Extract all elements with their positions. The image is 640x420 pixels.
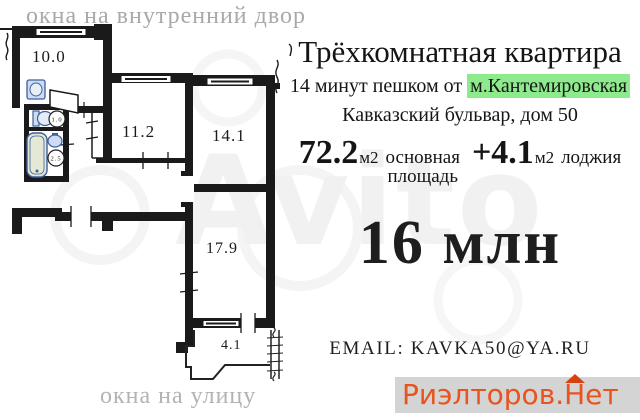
room-label-room2: 14.1 <box>212 126 246 145</box>
room-label-loggia: 4.1 <box>221 338 242 353</box>
bathtub-icon <box>27 133 47 177</box>
realtor-text-before: Риэлторов. <box>402 381 564 409</box>
main-area-unit: м2 <box>359 148 378 168</box>
extra-area-unit: м2 <box>535 148 554 168</box>
room-label-kitchen: 10.0 <box>32 47 66 66</box>
price: 16 млн <box>280 212 640 274</box>
house-roof-icon <box>565 374 585 383</box>
room-label-room1: 11.2 <box>122 122 155 141</box>
listing-title: Трёхкомнатная квартира <box>280 36 640 69</box>
extra-area-value: +4.1 <box>472 136 534 170</box>
contact-email: EMAIL: KAVKA50@YA.RU <box>280 338 640 360</box>
main-area-label: основнаяплощадь <box>386 148 460 186</box>
bath-size-badge: 2.5 <box>48 150 64 166</box>
room-label-room3: 17.9 <box>206 240 238 257</box>
floor-plan: 1.0 2.5 10.0 11.2 14.1 17.9 4.1 <box>0 0 300 420</box>
area-summary: 72.2 м2 основнаяплощадь +4.1 м2 лоджия <box>280 136 640 186</box>
listing-address: Кавказский бульвар, дом 50 <box>280 104 640 127</box>
kitchen-sink-icon <box>27 80 45 99</box>
wc-size-badge: 1.0 <box>49 111 65 127</box>
door-opening-17-9 <box>181 171 194 207</box>
listing-ad: { "plan": { "caption_top": "окна на внут… <box>0 0 640 420</box>
main-area-value: 72.2 <box>299 136 359 170</box>
walk-prefix: 14 минут пешком от <box>290 75 467 97</box>
walk-distance-line: 14 минут пешком от м.Кантемировская <box>280 75 640 98</box>
extra-area-label: лоджия <box>561 147 621 169</box>
wc-size-label: 1.0 <box>51 117 62 124</box>
loggia-outline <box>186 328 283 381</box>
bathroom-sink-icon <box>48 133 62 147</box>
plan-walls <box>12 24 280 353</box>
realtor-roof-letter: Н <box>564 381 585 409</box>
bath-size-label: 2.5 <box>50 156 61 163</box>
realtor-text-after: ет <box>585 381 619 409</box>
realtor-watermark-strip: Риэлторов.Нет <box>395 377 640 413</box>
metro-station-highlight: м.Кантемировская <box>467 74 630 98</box>
